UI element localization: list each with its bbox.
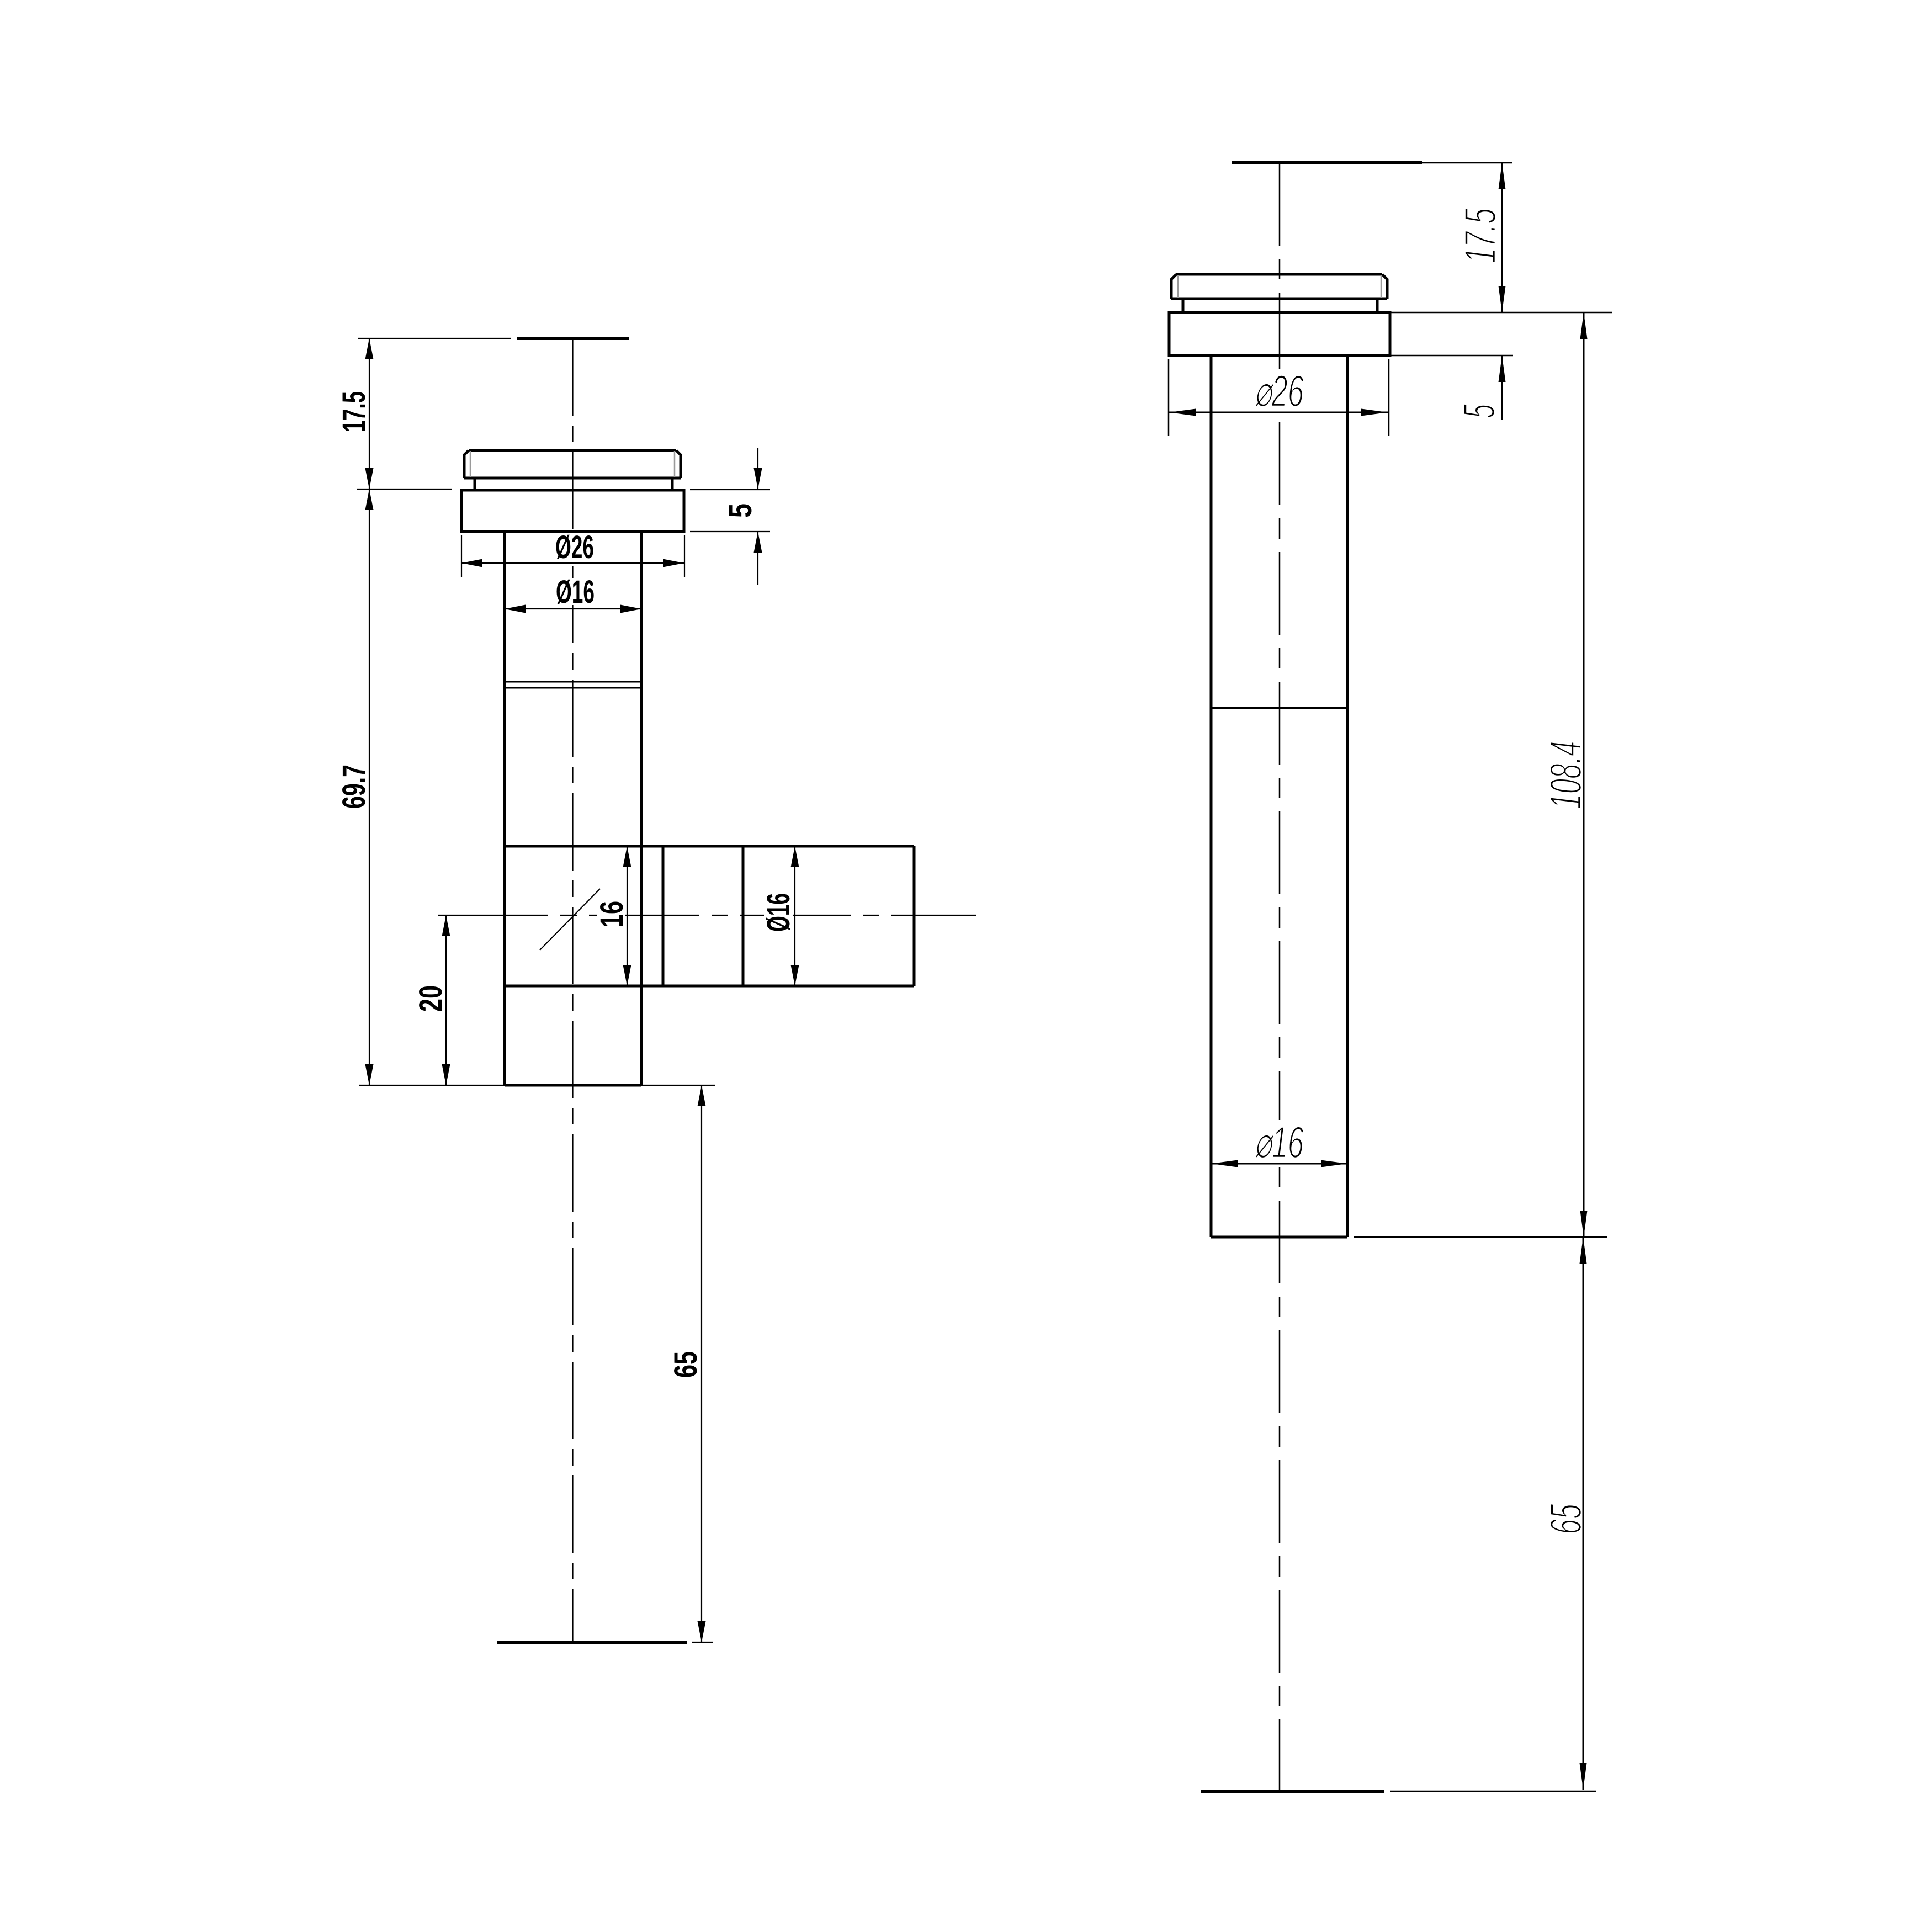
svg-text:17.5: 17.5 [1456,208,1505,263]
svg-text:17.5: 17.5 [336,391,372,432]
svg-text:5: 5 [723,503,758,518]
svg-text:⌀16: ⌀16 [1254,1118,1304,1167]
svg-text:5: 5 [1455,404,1504,418]
svg-text:65: 65 [668,1351,704,1378]
svg-text:⌀26: ⌀26 [1254,367,1304,416]
svg-text:65: 65 [1541,1504,1591,1535]
svg-text:Ø26: Ø26 [555,529,594,565]
svg-text:16: 16 [594,901,630,927]
svg-text:108.4: 108.4 [1541,741,1591,809]
svg-text:20: 20 [413,985,449,1012]
svg-text:69.7: 69.7 [336,765,372,809]
svg-text:Ø16: Ø16 [556,574,595,610]
svg-text:Ø16: Ø16 [761,893,797,932]
